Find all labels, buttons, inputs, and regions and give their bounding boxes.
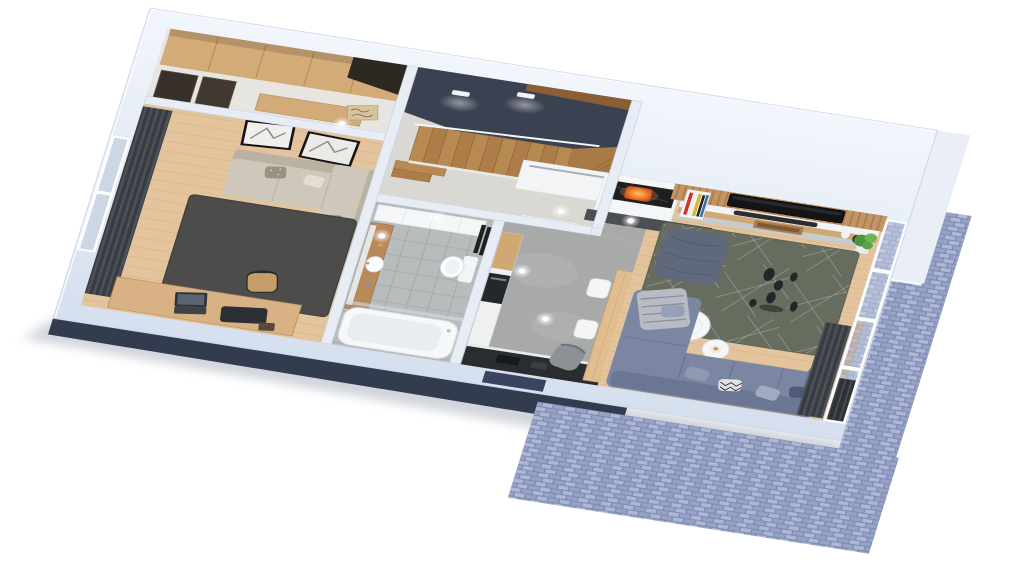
desk-chair [247,271,278,292]
floorplan-stage [0,0,1024,576]
bedroom-pillow-1 [264,166,286,178]
floorplan-render [0,0,1024,576]
sofa-pillow-1 [661,305,685,317]
decor-sign [347,106,378,120]
building [0,5,998,554]
notebook [258,322,275,331]
sofa-pillow-patterned [718,379,743,392]
laptop [174,292,208,314]
desk-mat [220,306,268,324]
